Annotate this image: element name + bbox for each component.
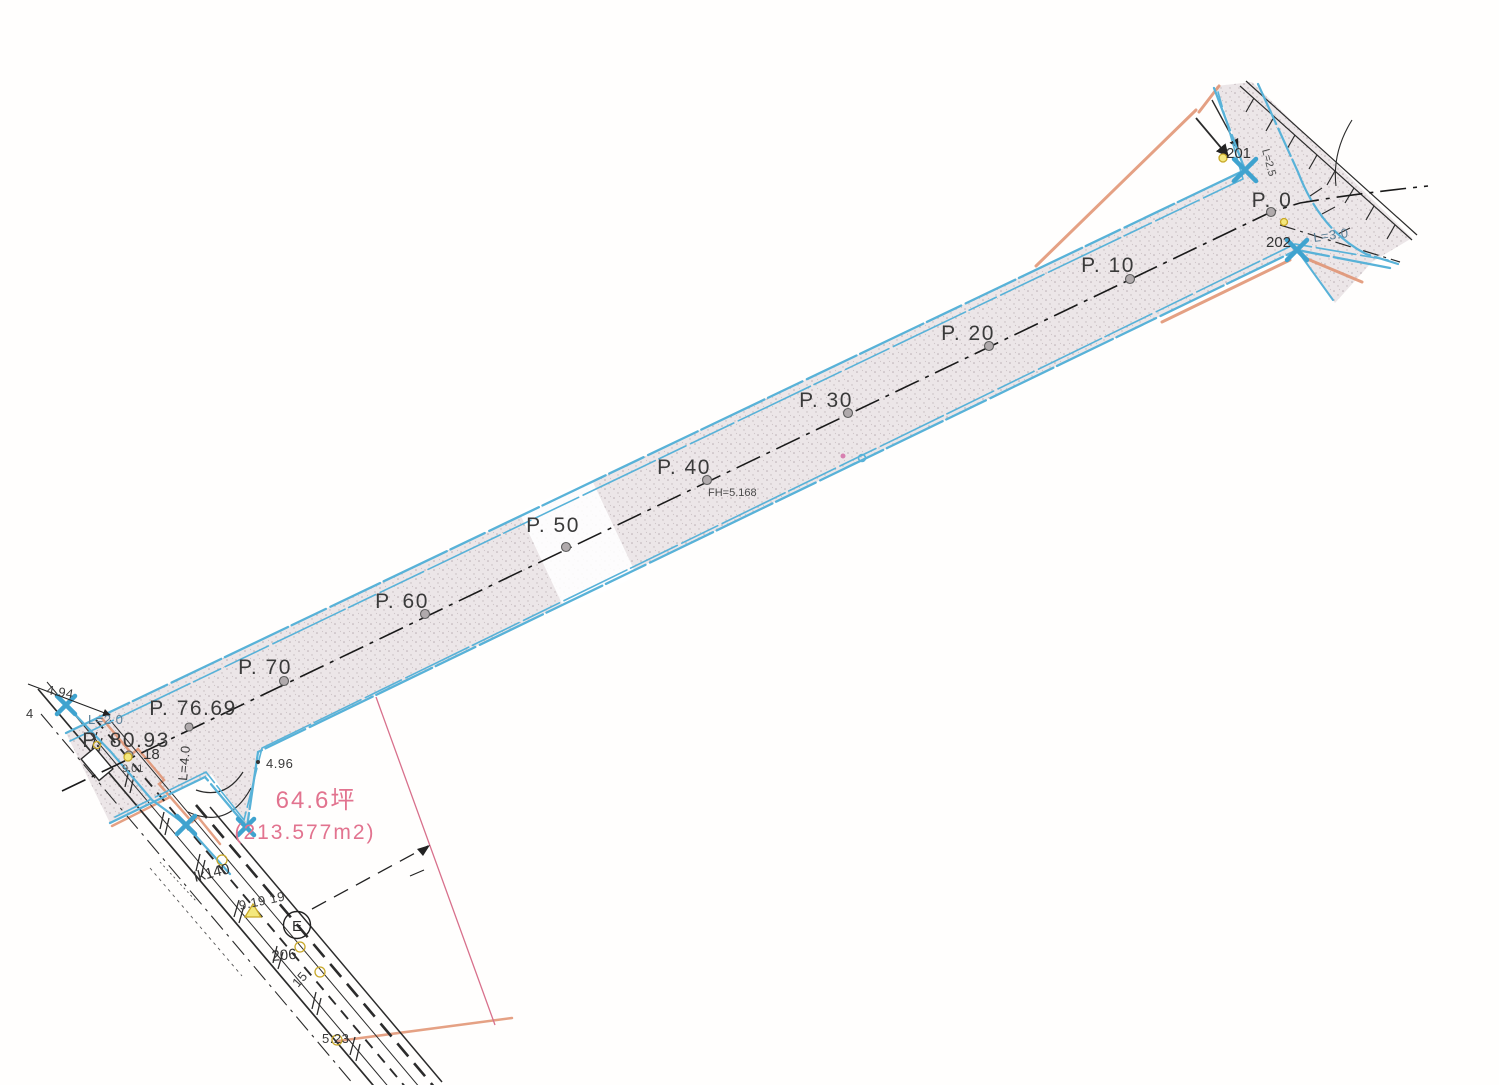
label-494: 4.94 [45,682,75,702]
label-4: 4 [26,706,34,721]
corridor-pavement [66,82,1412,823]
label-91919: 9.19 19 [238,889,287,913]
junction-arrow-1 [1196,118,1228,156]
label-496: 4.96 [266,756,293,771]
label-901: 9.01 [122,763,143,775]
label-202: 202 [1266,234,1291,251]
label-l40: L=4.0 [175,745,193,782]
parcel-dashed-lotline [312,846,428,909]
label-l20: L=2.0 [88,712,123,727]
label-206: 206 [271,946,297,965]
station-label-p0: P. 0 [1252,189,1293,212]
label-18: 18 [143,746,160,763]
station-label-p50: P. 50 [526,514,580,537]
station-label-p7669: P. 76.69 [149,697,237,720]
label-area-tsubo: 64.6坪 [276,787,357,814]
small-pink-dot [841,454,846,459]
edge-lower-outer [110,250,1390,827]
road-corridor [66,82,1412,827]
lotline-arrowhead [417,845,430,856]
label-area-m2: (213.577m2) [234,821,375,844]
label-fh: FH=5.168 [708,487,757,499]
label-523: 5.23 [322,1031,349,1046]
station-label-p60: P. 60 [375,590,429,613]
survey-drawing-sheet: E P. 0 P. 10 P. 20 P. 30 P. 40 P. 50 P. … [0,0,1499,1085]
edge-lower-inner [115,244,1388,820]
edge-upper-outer [66,88,1245,733]
edge-upper-inner [70,92,1243,741]
spot-elevation-dot [256,760,260,764]
station-label-p20: P. 20 [941,322,995,345]
parcel-pink-boundary [376,697,495,1025]
lotline-stray-dash [410,870,424,876]
station-label-p40: P. 40 [657,456,711,479]
station-label-p70: P. 70 [238,656,292,679]
label-201: 201 [1226,145,1251,162]
benchmark-letter: E [292,918,302,935]
street-heavy-dash [196,805,435,1085]
benchmark-e: E [284,912,311,939]
station-label-p30: P. 30 [799,389,853,412]
road-plan-canvas: E P. 0 P. 10 P. 20 P. 30 P. 40 P. 50 P. … [0,0,1499,1085]
station-label-p10: P. 10 [1081,254,1135,277]
station-labels: P. 0 P. 10 P. 20 P. 30 P. 40 P. 50 P. 60… [82,189,1292,752]
